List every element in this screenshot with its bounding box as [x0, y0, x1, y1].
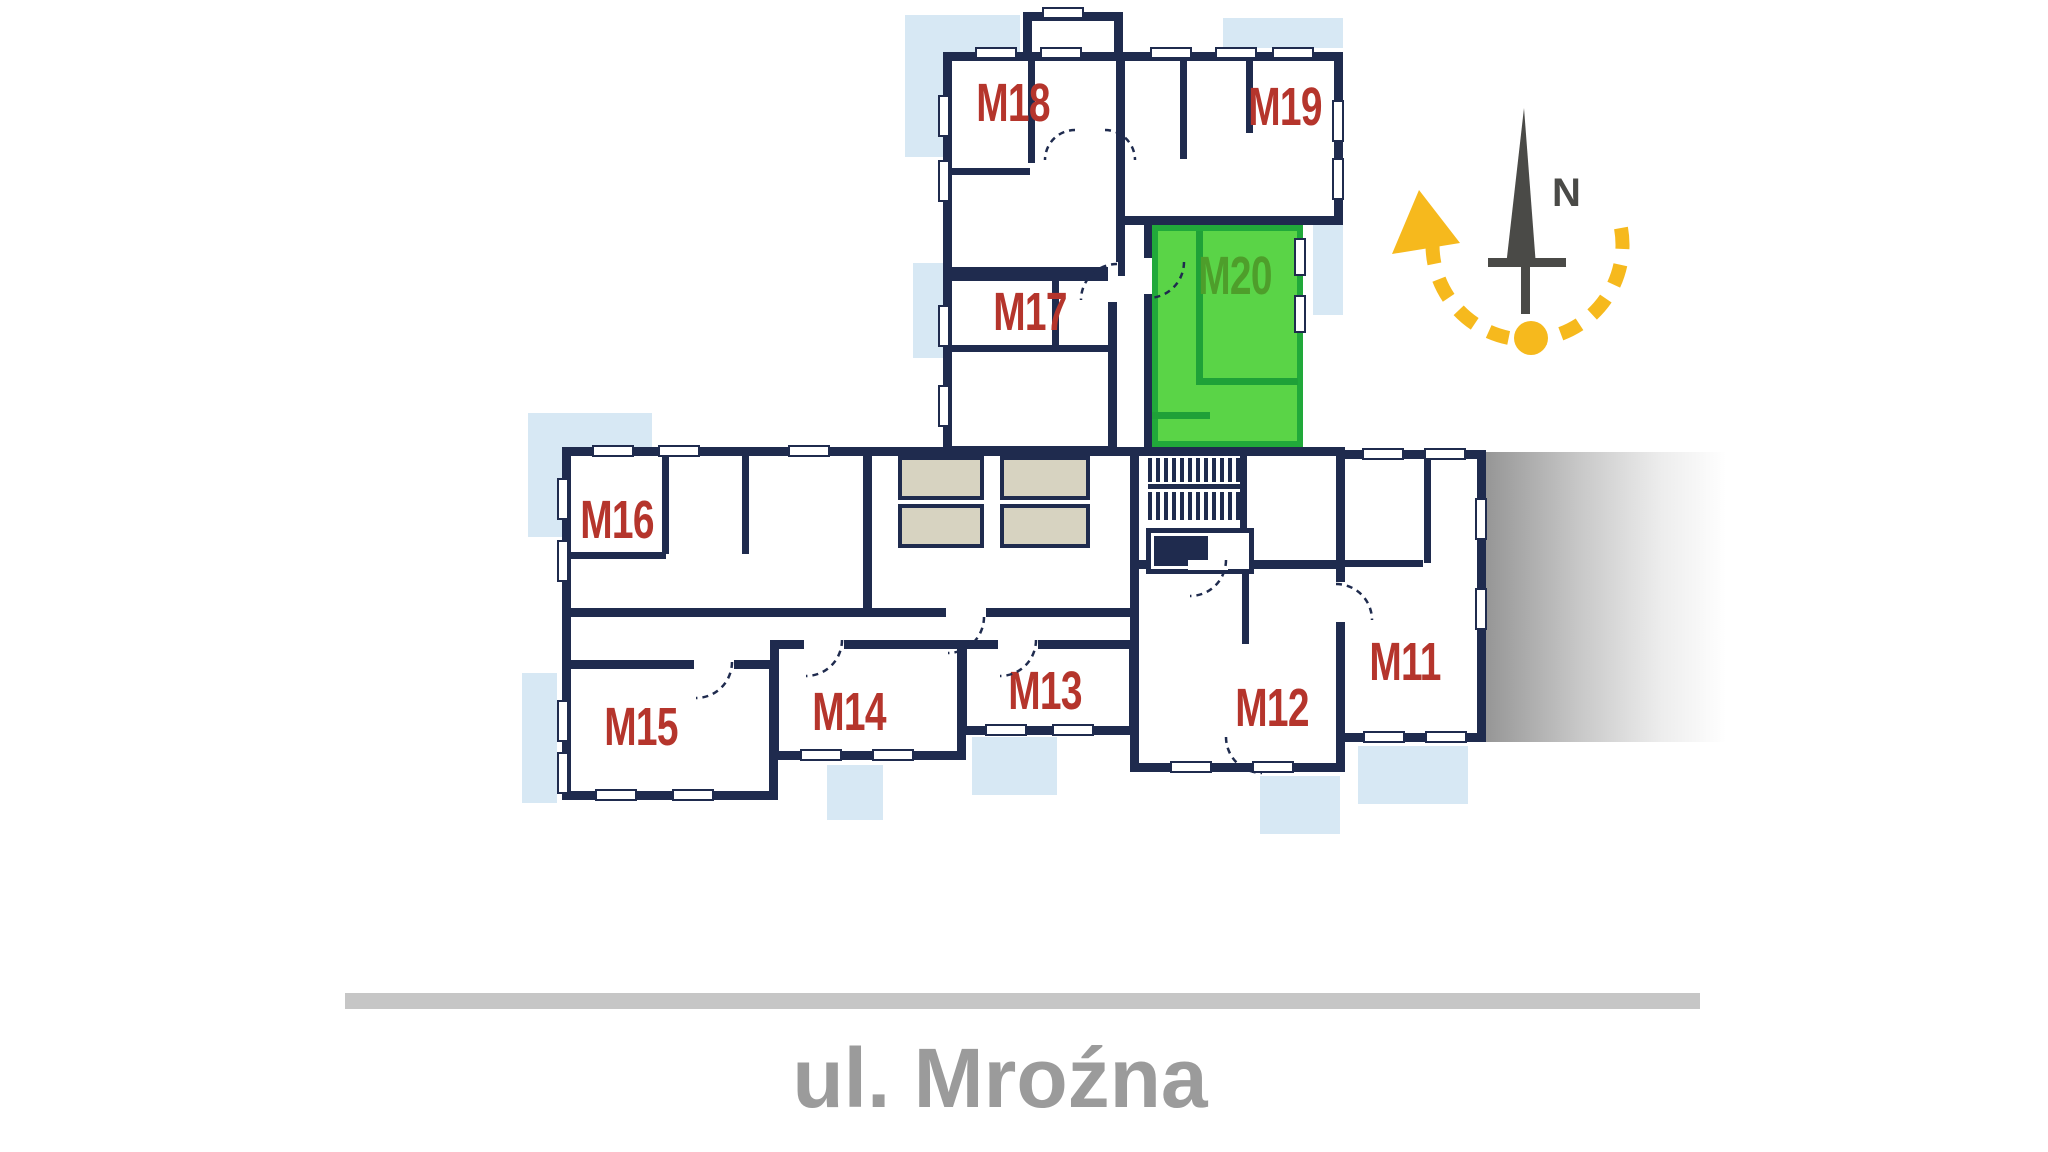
compass-pivot-dot [1514, 321, 1548, 355]
compass-arrowhead-icon [1392, 190, 1460, 254]
street-line [345, 993, 1700, 1009]
compass: N [1392, 108, 1623, 355]
door-arcs [696, 130, 1372, 773]
floor-plan: M18 M19 M17 M20 M16 M15 M14 M13 M12 M11 [0, 0, 2048, 1152]
street-name: ul. Mroźna [600, 1030, 1400, 1127]
north-label: N [1552, 171, 1581, 215]
plan-annotations: N [0, 0, 2048, 1152]
